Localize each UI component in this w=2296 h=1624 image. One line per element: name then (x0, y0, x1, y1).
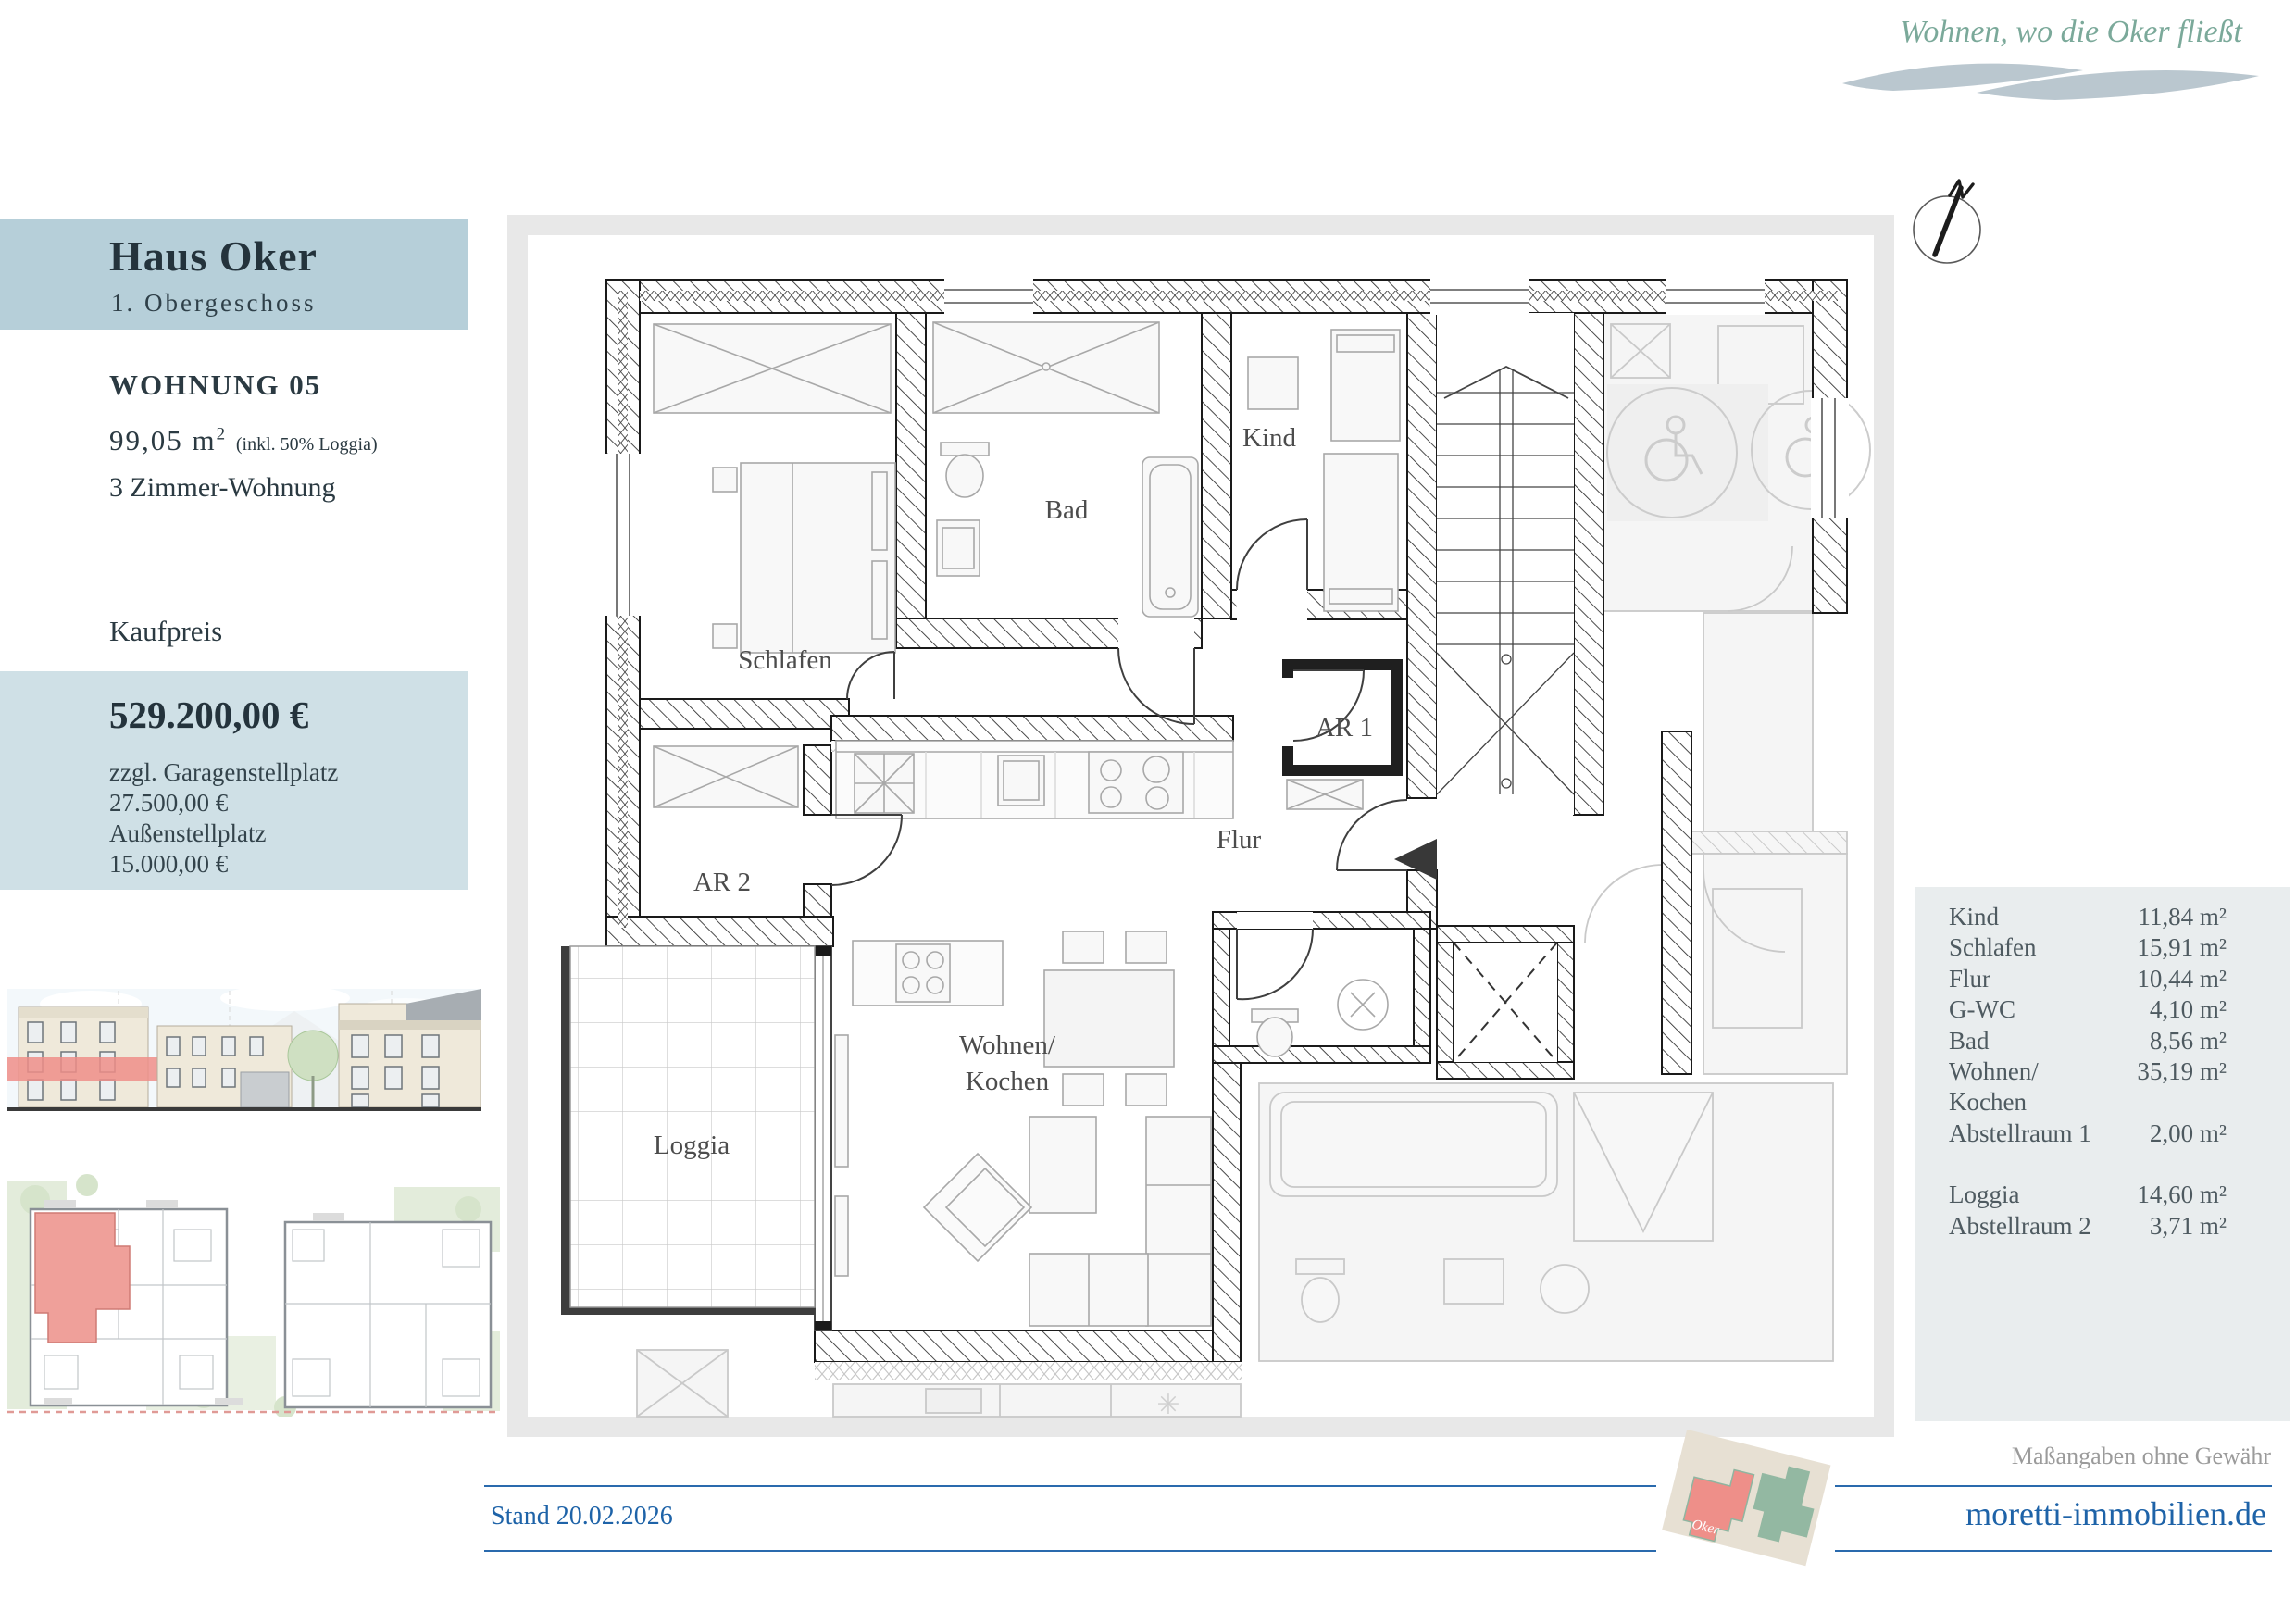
disclaimer: Maßangaben ohne Gewähr (2012, 1443, 2271, 1470)
apartment-area: 99,05 m2 (inkl. 50% Loggia) (109, 424, 378, 457)
footer-line (1835, 1550, 2272, 1552)
room-areas-panel: Kind11,84 m² Schlafen15,91 m² Flur10,44 … (1915, 887, 2290, 1421)
area-row: Wohnen/35,19 m² (1949, 1056, 2227, 1087)
area-row: Loggia14,60 m² (1949, 1180, 2227, 1210)
website-link[interactable]: moretti-immobilien.de (1965, 1494, 2266, 1533)
price-extras: zzgl. Garagenstellplatz 27.500,00 € Auße… (109, 757, 338, 880)
extra-garage-label: zzgl. Garagenstellplatz (109, 757, 338, 788)
area-row: Bad8,56 m² (1949, 1026, 2227, 1056)
area-row: Flur10,44 m² (1949, 964, 2227, 994)
loggia-floor (570, 946, 815, 1307)
insulation-strip (640, 291, 1838, 301)
price-label: Kaufpreis (109, 615, 222, 648)
price-amount: 529.200,00 € (109, 693, 308, 737)
brand-tagline: Wohnen, wo die Oker fließt (1900, 15, 2242, 50)
elevator (1454, 943, 1557, 1062)
label-ar1: AR 1 (1316, 713, 1373, 743)
area-row: G-WC4,10 m² (1949, 994, 2227, 1025)
label-loggia: Loggia (654, 1131, 730, 1160)
area-row: Schlafen15,91 m² (1949, 932, 2227, 963)
floor-subtitle: 1. Obergeschoss (111, 289, 316, 318)
label-flur: Flur (1217, 825, 1262, 855)
wave-icon (1838, 48, 2264, 104)
label-ar2: AR 2 (693, 868, 751, 897)
footer-line (1835, 1485, 2272, 1487)
area-row: Abstellraum 12,00 m² (1949, 1118, 2227, 1149)
company-logo: Oker (1650, 1418, 1844, 1613)
extra-outdoor-price: 15.000,00 € (109, 849, 338, 880)
area-row: Kochen (1949, 1087, 2227, 1118)
label-kind: Kind (1242, 423, 1297, 453)
extra-outdoor-label: Außenstellplatz (109, 818, 338, 849)
area-row: Kind11,84 m² (1949, 902, 2227, 932)
expose-page: Wohnen, wo die Oker fließt Haus Oker 1. … (0, 0, 2296, 1624)
elevation-image (7, 983, 481, 1120)
footer-line (484, 1550, 1656, 1552)
label-schlafen: Schlafen (738, 645, 832, 675)
vent-symbol: ✳ (1156, 1390, 1179, 1420)
label-kochen: Kochen (966, 1067, 1050, 1096)
label-wohnen: Wohnen/ (959, 1031, 1056, 1060)
label-bad: Bad (1045, 495, 1089, 525)
date-stand: Stand 20.02.2026 (491, 1502, 673, 1531)
north-arrow-icon (1905, 171, 1998, 273)
apartment-rooms: 3 Zimmer-Wohnung (109, 472, 335, 504)
area-value: 99,05 m (109, 424, 217, 456)
apartment-number: WOHNUNG 05 (109, 369, 321, 402)
footer-line (484, 1485, 1656, 1487)
area-note: (inkl. 50% Loggia) (236, 434, 378, 455)
area-row: Abstellraum 23,71 m² (1949, 1211, 2227, 1242)
area-sup: 2 (217, 425, 228, 444)
floor-plan: ✳ (507, 215, 1894, 1437)
unit-highlight-elevation (7, 1057, 167, 1081)
extra-garage-price: 27.500,00 € (109, 788, 338, 818)
building-title: Haus Oker (109, 231, 318, 281)
siteplan-image (7, 1174, 500, 1417)
stairs (1437, 313, 1574, 815)
